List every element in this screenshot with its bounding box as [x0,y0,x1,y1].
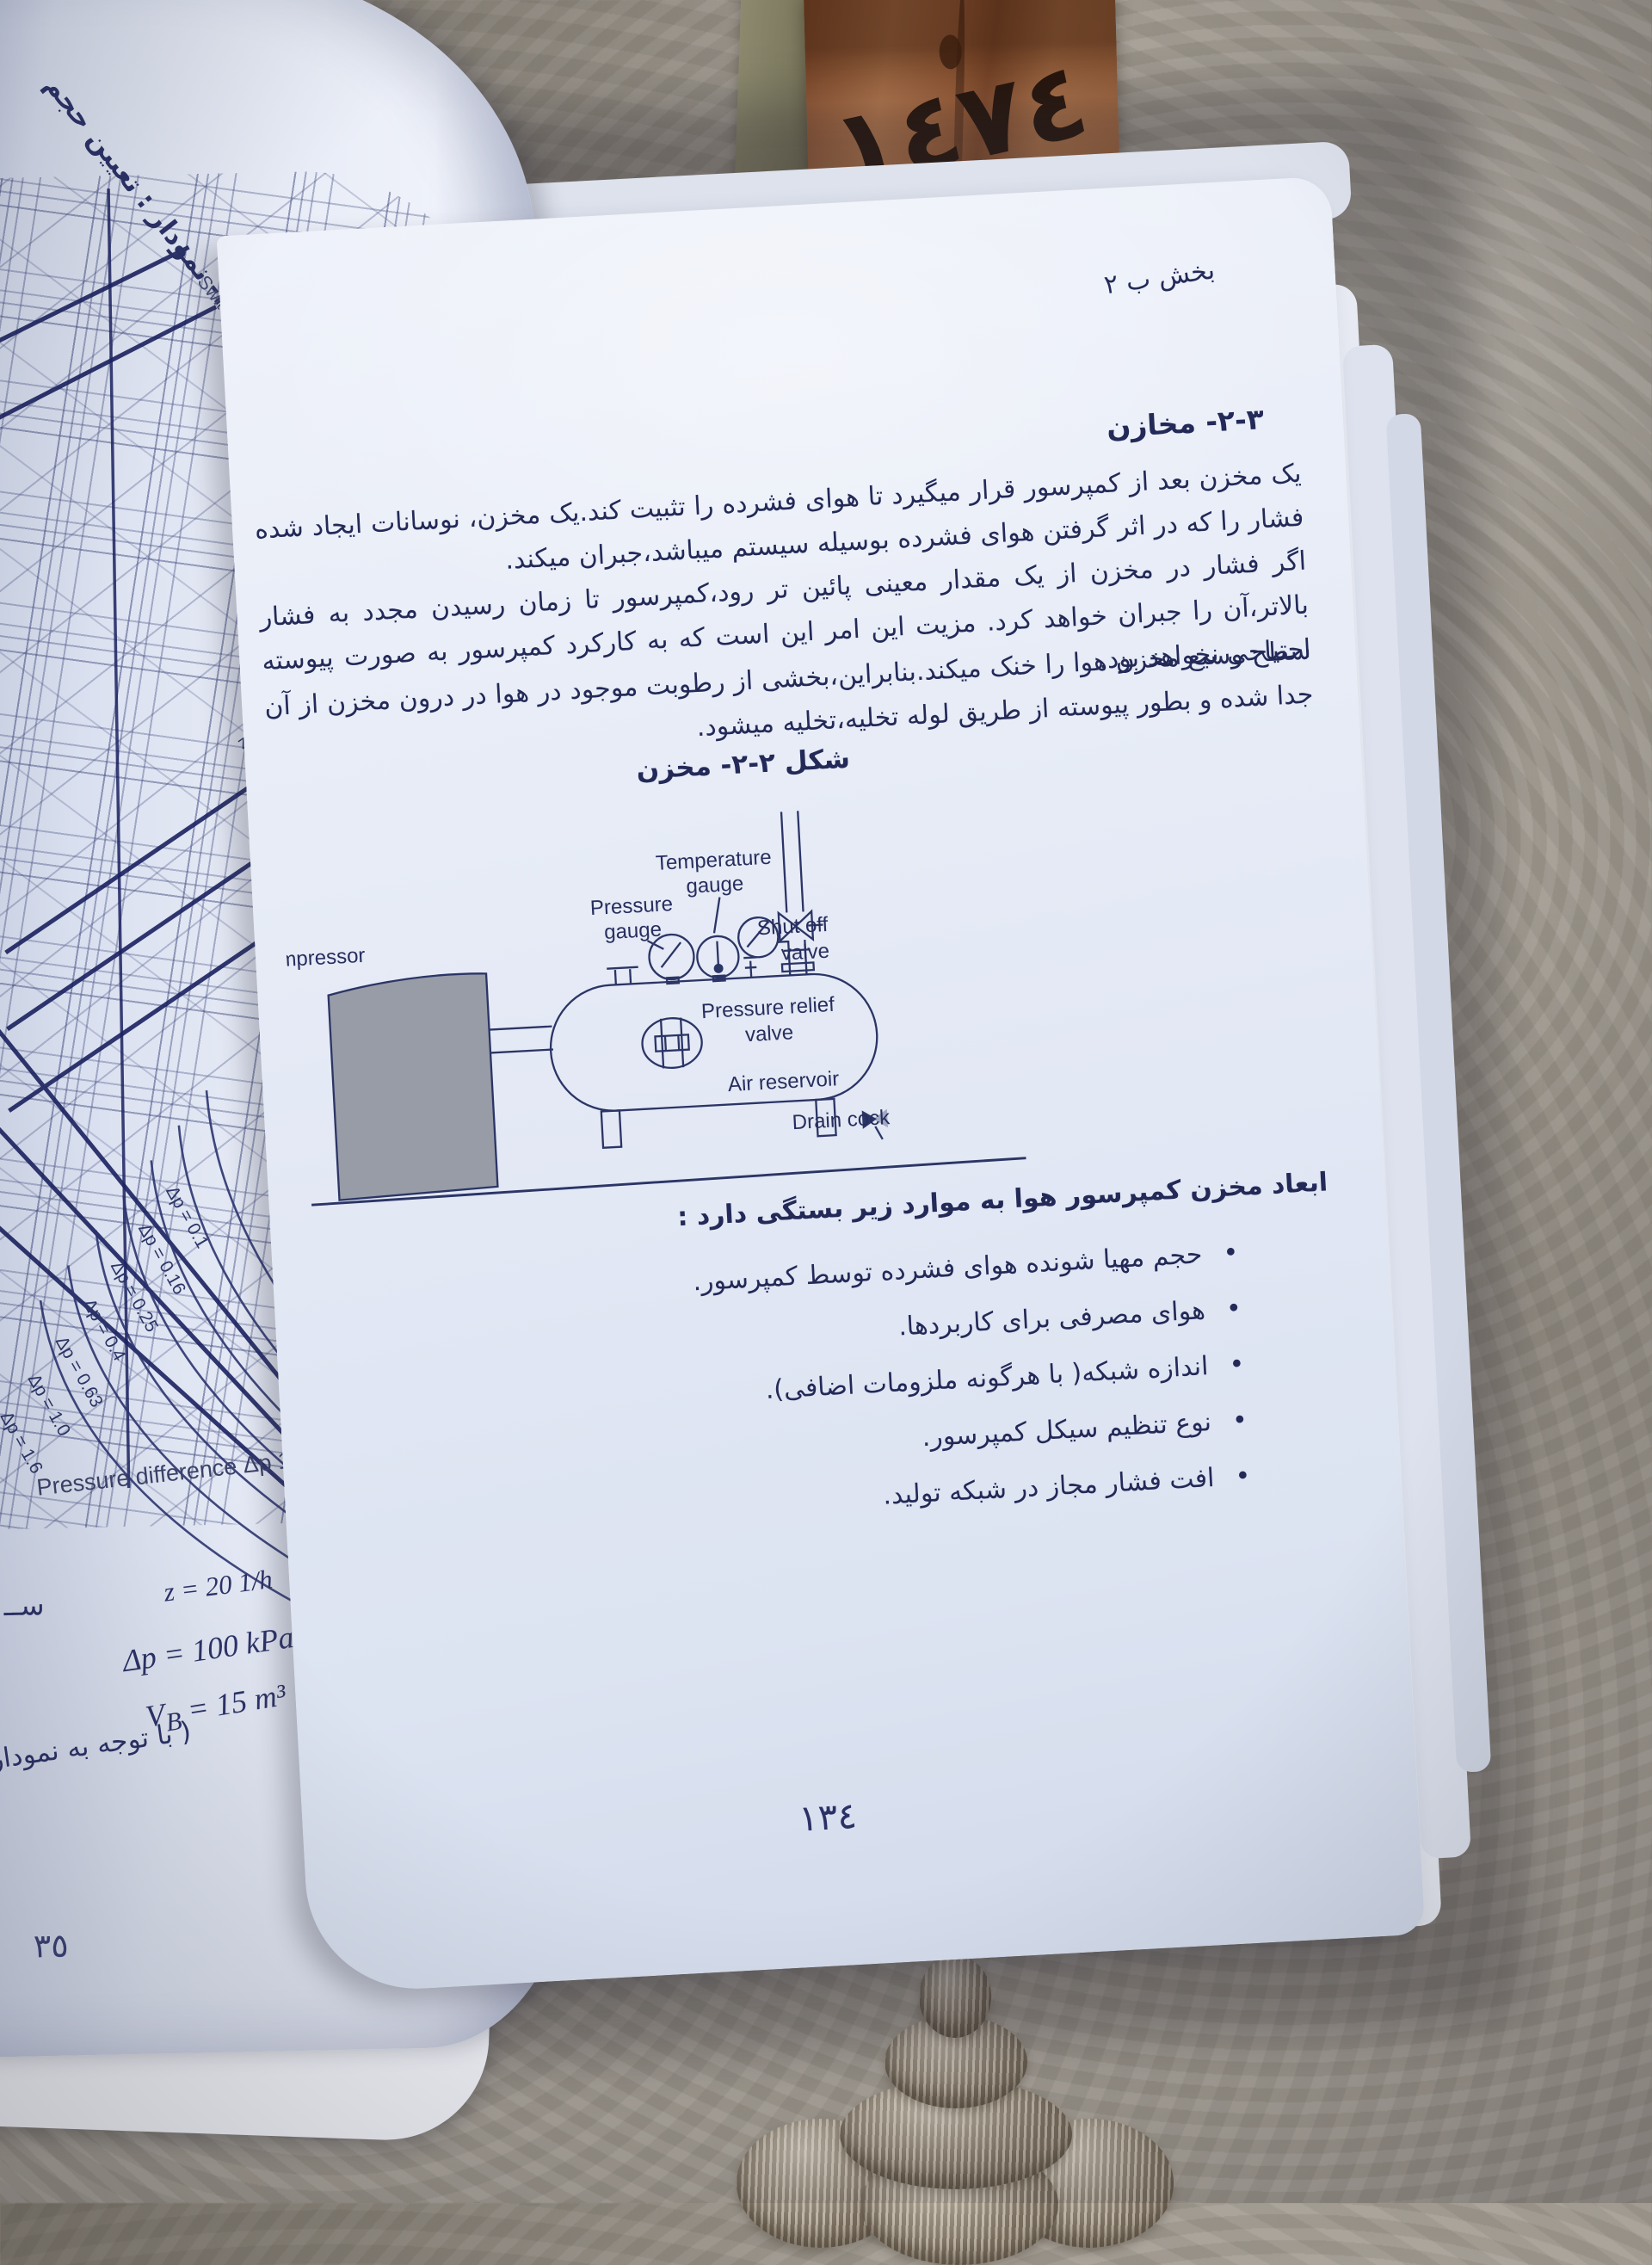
page-number: ١٣٤ [749,1792,906,1842]
pressure-gauge-label: Pressure [589,892,673,920]
drain-cock-label: Drain cock [792,1106,891,1134]
temperature-gauge-label: gauge [686,872,744,898]
temperature-gauge-label: Temperature [655,846,772,875]
compressor-label: Compressor [280,944,366,973]
running-header: بخش ب ٢ [1102,255,1217,300]
pressure-gauge-label: gauge [603,918,662,945]
section-heading: ٣-٢- مخازن [1106,402,1265,444]
dp-curve-label: Δp = 1.6 [0,1408,46,1477]
photo-of-open-book: { "scene": { "bookmark_number": "١٤٧٤", … [0,0,1652,2203]
dp-curve-label: Δp = 0.4 [79,1295,130,1364]
shutoff-valve-label: valve [780,940,829,966]
cutoff-text-fragment: ســ [3,1588,45,1622]
right-page: بخش ب ٢ ٣-٢- مخازن یک مخزن بعد از کمپرسو… [217,176,1426,1994]
dp-curve-label: Δp = 1.0 [24,1371,75,1440]
relief-valve-label: Pressure relief [700,993,835,1023]
left-page-number-partial: ٣٥ [33,1927,69,1966]
air-reservoir-label: Air reservoir [727,1067,840,1096]
relief-valve-label: valve [744,1021,793,1046]
shutoff-valve-label: Shut off [756,913,829,940]
air-reservoir-diagram: Compressor Pressure gauge Temperature ga… [280,783,1061,1229]
dependency-list: حجم مهیا شونده هوای فشرده توسط کمپرسور. … [377,1229,1346,1560]
